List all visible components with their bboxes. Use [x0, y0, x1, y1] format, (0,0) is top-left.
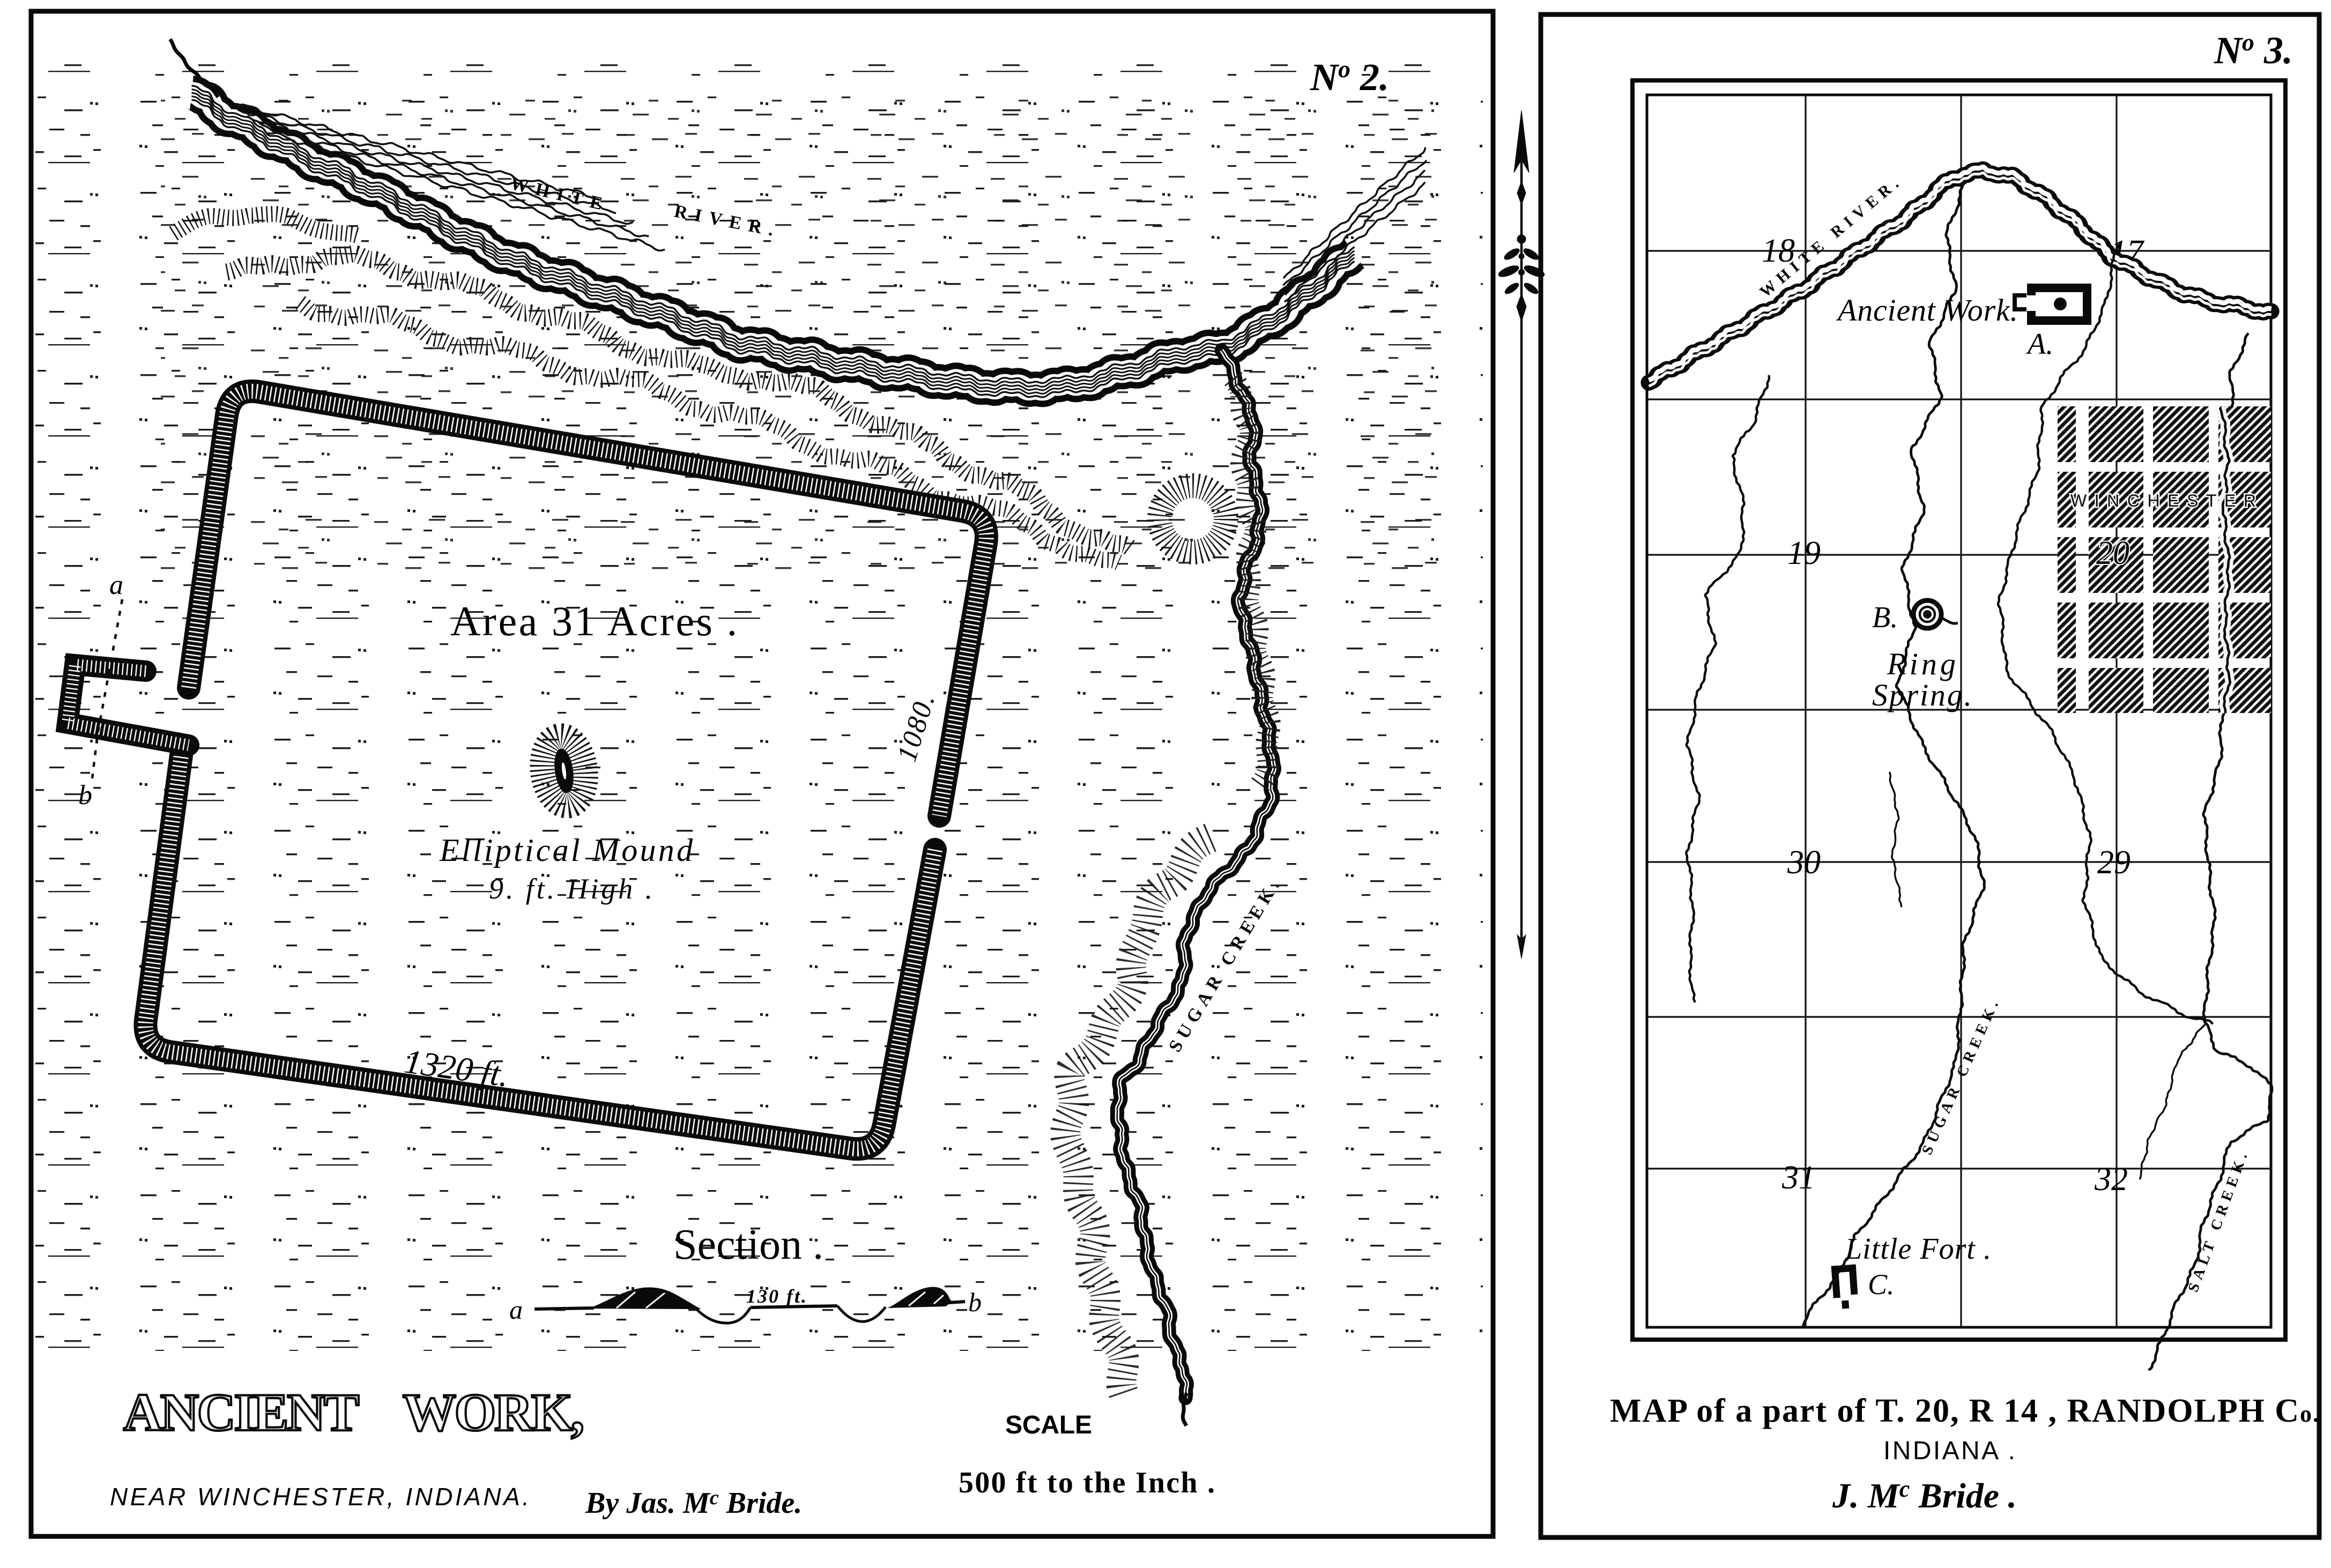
svg-text:B.: B. — [1872, 601, 1898, 634]
svg-text:INDIANA .: INDIANA . — [1883, 1437, 2022, 1465]
svg-text:b: b — [78, 780, 92, 811]
svg-text:Area 31 Acres .: Area 31 Acres . — [450, 598, 737, 644]
svg-text:Section .: Section . — [673, 1221, 823, 1268]
svg-text:Elliptical Mound: Elliptical Mound — [439, 833, 693, 868]
svg-text:20: 20 — [2096, 535, 2129, 571]
svg-text:b: b — [968, 1287, 982, 1317]
svg-text:J. Mc Bride .: J. Mc Bride . — [1832, 1476, 2017, 1515]
svg-text:130 ft.: 130 ft. — [746, 1285, 806, 1307]
svg-text:Ring: Ring — [1887, 646, 1956, 681]
svg-text:19: 19 — [1787, 535, 1821, 571]
svg-text:Ancient Work.: Ancient Work. — [1836, 293, 2018, 328]
svg-text:500 ft to the Inch .: 500 ft to the Inch . — [959, 1466, 1215, 1499]
svg-text:32: 32 — [2094, 1161, 2128, 1198]
svg-text:NEAR WINCHESTER, INDIANA.: NEAR WINCHESTER, INDIANA. — [110, 1483, 533, 1511]
svg-text:a: a — [109, 570, 123, 600]
svg-text:SCALE: SCALE — [1005, 1411, 1095, 1439]
svg-text:A.: A. — [2025, 328, 2053, 361]
svg-text:By Jas. Mc Bride.: By Jas. Mc Bride. — [585, 1487, 802, 1520]
svg-text:Spring.: Spring. — [1872, 678, 1972, 712]
svg-text:C.: C. — [1868, 1268, 1895, 1301]
svg-text:Little Fort .: Little Fort . — [1845, 1232, 1991, 1266]
svg-text:31: 31 — [1781, 1160, 1815, 1196]
svg-text:ANCIENT WORK,: ANCIENT WORK, — [123, 1383, 597, 1442]
svg-text:MAP of a part of T. 20, R 1: MAP of a part of T. 20, R 14 , RANDOLPH … — [1610, 1393, 2319, 1429]
svg-text:a: a — [509, 1295, 523, 1325]
svg-text:30: 30 — [1787, 844, 1821, 881]
svg-text:29: 29 — [2097, 844, 2130, 881]
